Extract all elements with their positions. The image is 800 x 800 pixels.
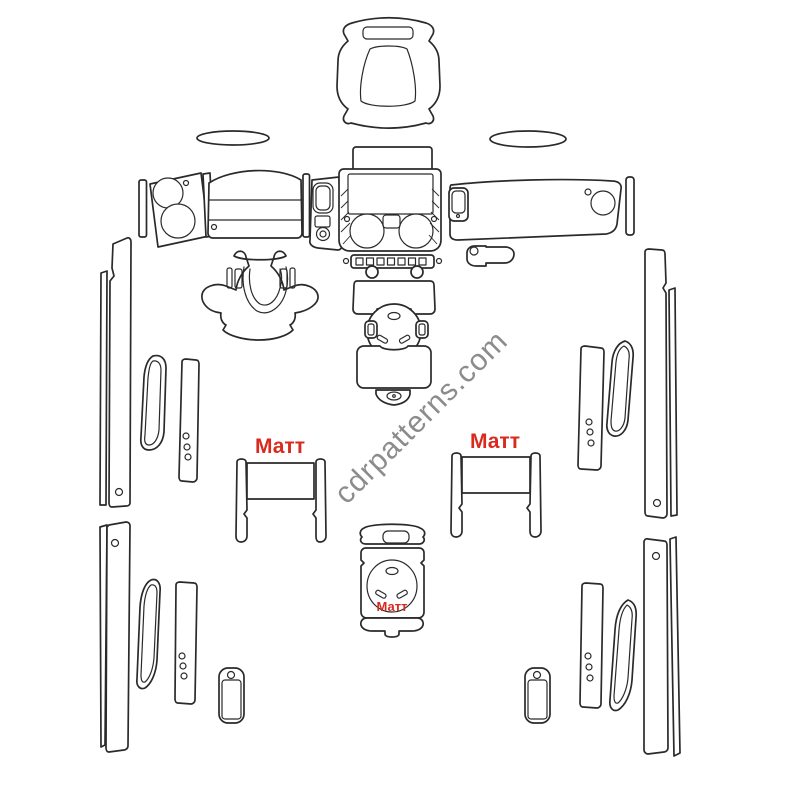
hvac-knob-icon: [350, 214, 384, 248]
front-right-door-strip: [578, 346, 604, 470]
console-lower-panel: [357, 346, 431, 388]
center-stack-bezel: [339, 169, 441, 251]
front-right-door-pull: [607, 341, 633, 436]
rear-right-pillar-strips: [644, 537, 680, 756]
rear-console-unit: [360, 524, 424, 637]
front-right-pillar-strips: [645, 249, 677, 518]
rear-left-door-pull: [137, 580, 160, 689]
right-seat-back-frame: [451, 453, 541, 537]
left-seat-back-frame: [236, 459, 326, 542]
rear-left-pillar-strips: [100, 522, 130, 752]
passenger-dash-panel: [450, 180, 621, 240]
rear-left-door-strip: [175, 582, 197, 704]
hvac-knob-icon: [399, 214, 433, 248]
left-small-pillar-trim: [219, 668, 244, 723]
pattern-canvas: cdrpatterns.com: [0, 0, 800, 800]
gearshift-bezel: [449, 188, 468, 221]
finish-label-console: Матт: [377, 599, 408, 614]
center-stack-button-strip: [344, 255, 442, 268]
trim-kit-diagram: cdrpatterns.com: [0, 0, 800, 800]
passenger-end-cap-strip: [626, 177, 634, 235]
front-left-pillar-strips: [100, 238, 131, 507]
glovebox-handle: [467, 246, 514, 266]
overhead-console-trim: [337, 18, 440, 129]
vent-hole-icon: [591, 191, 615, 215]
finish-label-right: Матт: [470, 430, 520, 453]
right-defroster-ellipse: [490, 131, 566, 147]
instrument-cluster-bezel: [150, 173, 213, 247]
console-end-cap: [376, 390, 410, 405]
right-small-pillar-trim: [525, 668, 550, 723]
finish-label-left: Матт: [255, 435, 305, 458]
column-side-strip: [303, 174, 310, 237]
driver-end-cap-strip: [139, 180, 147, 237]
driver-dash-arc-panel: [208, 171, 302, 238]
front-left-door-pull: [141, 356, 166, 450]
column-switch-panel: [310, 177, 342, 250]
front-left-door-strip: [179, 359, 199, 482]
rear-right-door-strip: [580, 583, 603, 708]
left-defroster-ellipse: [197, 131, 269, 145]
rear-right-door-pull: [610, 600, 636, 711]
steering-column-horseshoe: [202, 251, 318, 340]
